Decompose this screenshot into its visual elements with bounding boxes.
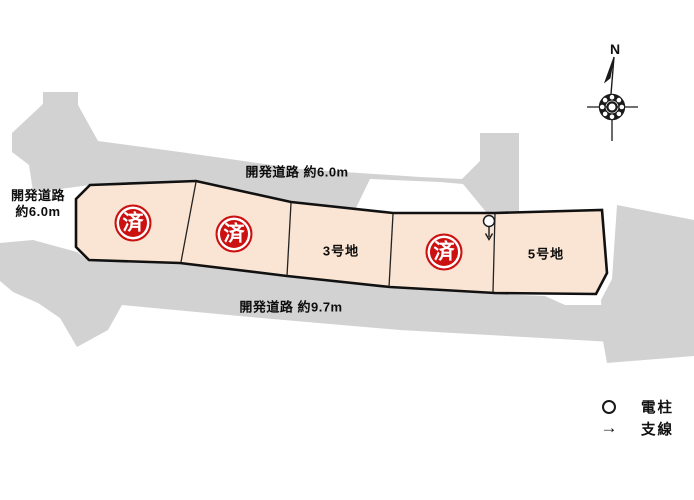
road-label-left-line2: 約6.0m [11, 204, 65, 220]
road-label-left: 開発道路 約6.0m [11, 188, 65, 221]
legend-guywire-label: 支線 [641, 419, 674, 440]
sold-stamp-text: 済 [434, 242, 455, 263]
legend-pole-label: 電柱 [641, 397, 674, 418]
road-label-top: 開発道路 約6.0m [245, 162, 348, 181]
road-label-left-line1: 開発道路 [11, 188, 65, 204]
sold-stamp-plot-1: 済 [115, 205, 152, 242]
road-shape-right [601, 205, 694, 363]
sold-stamp-text: 済 [224, 224, 245, 245]
legend-guywire-icon: → [601, 418, 618, 438]
site-plan-map: 開発道路 約6.0m 開発道路 約9.7m 開発道路 約6.0m 1号地 2号地… [0, 0, 694, 500]
sold-stamp-plot-4: 済 [426, 234, 463, 271]
compass-icon [587, 57, 638, 141]
plot-label-3: 3号地 [323, 241, 359, 260]
plot-label-5: 5号地 [528, 244, 564, 263]
sold-stamp-text: 済 [123, 213, 144, 234]
legend-pole-icon [602, 400, 616, 414]
road-label-bottom: 開発道路 約9.7m [239, 297, 342, 316]
compass-north-label: N [610, 41, 620, 57]
sold-stamp-plot-2: 済 [216, 216, 253, 253]
